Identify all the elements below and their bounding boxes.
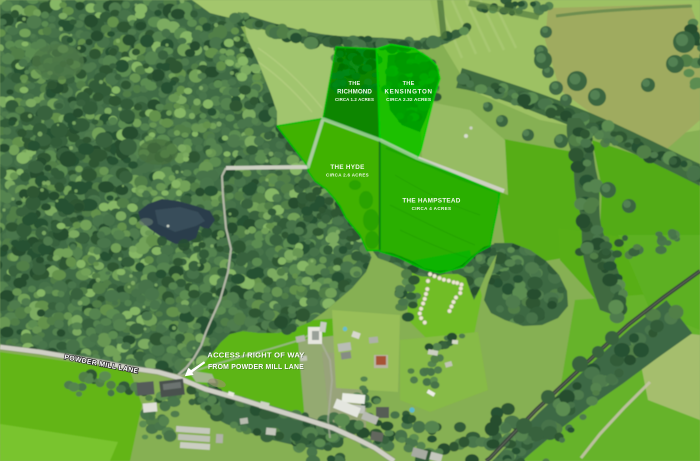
svg-text:CIRCA 2.32 ACRES: CIRCA 2.32 ACRES	[386, 97, 431, 102]
svg-text:KENSINGTON: KENSINGTON	[385, 88, 433, 95]
svg-text:THE HAMPSTEAD: THE HAMPSTEAD	[402, 198, 460, 205]
svg-text:CIRCA 2.6 ACRES: CIRCA 2.6 ACRES	[326, 173, 369, 178]
svg-text:FROM POWDER MILL LANE: FROM POWDER MILL LANE	[208, 364, 304, 371]
svg-text:CIRCA 1.2 ACRES: CIRCA 1.2 ACRES	[335, 97, 374, 102]
svg-text:THE HYDE: THE HYDE	[330, 164, 364, 171]
svg-text:ACCESS / RIGHT OF WAY: ACCESS / RIGHT OF WAY	[207, 351, 304, 360]
svg-text:CIRCA 4 ACRES: CIRCA 4 ACRES	[412, 206, 452, 211]
svg-text:RICHMOND: RICHMOND	[337, 88, 372, 95]
svg-text:THE: THE	[403, 81, 415, 87]
svg-text:THE: THE	[349, 81, 361, 87]
